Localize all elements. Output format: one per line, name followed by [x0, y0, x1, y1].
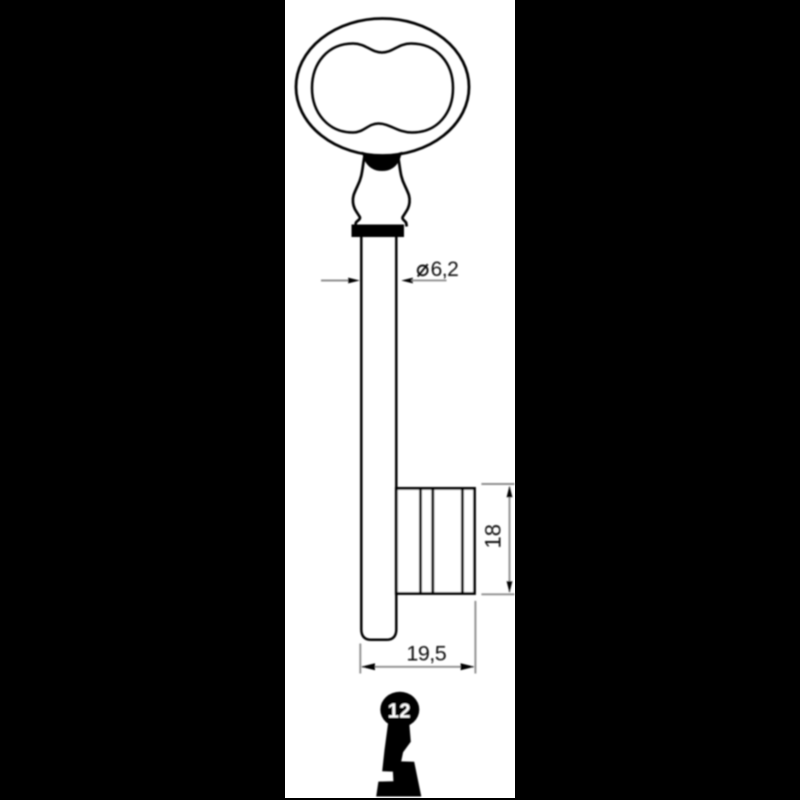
svg-text:6,2: 6,2	[431, 258, 459, 281]
svg-text:18: 18	[481, 524, 506, 548]
svg-text:12: 12	[388, 700, 411, 722]
svg-text:19,5: 19,5	[406, 642, 446, 666]
